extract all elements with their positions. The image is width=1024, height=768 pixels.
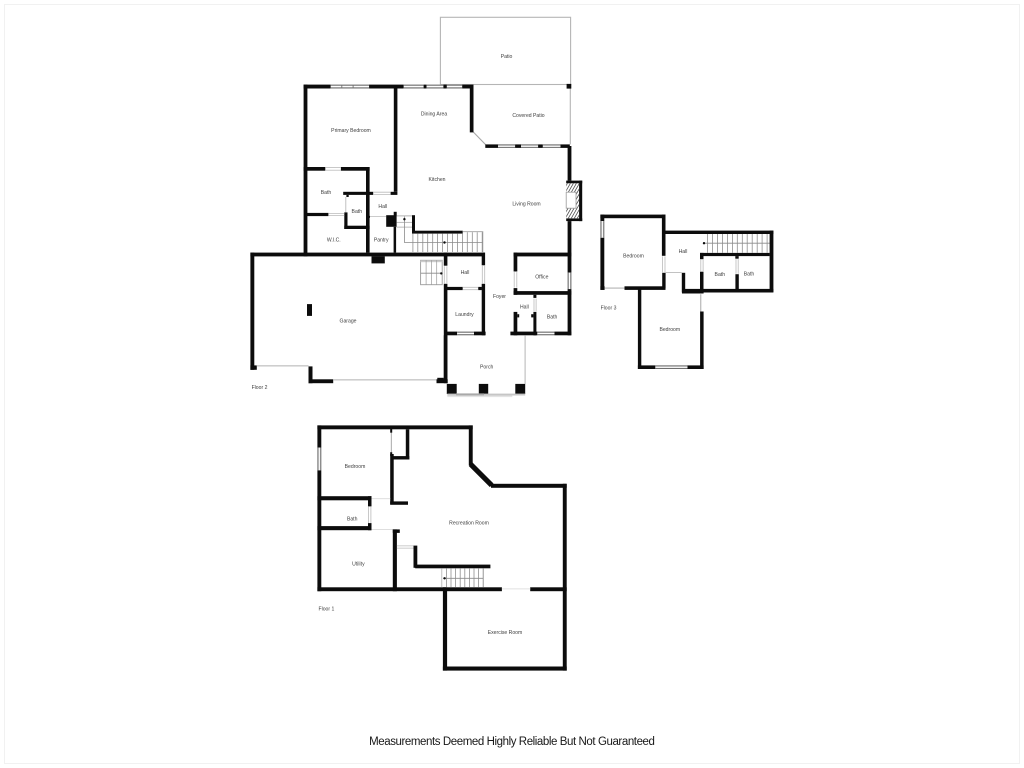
svg-text:Hall: Hall — [679, 249, 688, 255]
svg-text:W.I.C.: W.I.C. — [327, 237, 341, 243]
svg-text:Office: Office — [535, 274, 548, 280]
svg-text:Bath: Bath — [744, 272, 755, 278]
svg-text:Pantry: Pantry — [374, 238, 389, 244]
svg-text:Living Room: Living Room — [512, 202, 540, 208]
svg-text:Kitchen: Kitchen — [429, 177, 446, 183]
svg-text:Primary Bedroom: Primary Bedroom — [331, 128, 371, 134]
svg-text:Bedroom: Bedroom — [345, 464, 366, 470]
svg-text:Bedroom: Bedroom — [623, 253, 644, 259]
svg-text:Bath: Bath — [347, 517, 358, 523]
svg-text:Exercise Room: Exercise Room — [488, 630, 523, 636]
svg-text:Floor 3: Floor 3 — [601, 305, 617, 311]
svg-text:Bedroom: Bedroom — [659, 327, 680, 333]
svg-text:Patio: Patio — [501, 54, 513, 60]
svg-text:Floor 1: Floor 1 — [318, 607, 334, 613]
svg-text:Recreation Room: Recreation Room — [449, 520, 489, 526]
svg-text:Bath: Bath — [321, 190, 332, 196]
svg-text:Laundry: Laundry — [455, 312, 474, 318]
svg-text:Bath: Bath — [715, 272, 726, 278]
svg-text:Foyer: Foyer — [493, 294, 506, 300]
svg-text:Floor 2: Floor 2 — [252, 385, 268, 391]
svg-text:Covered Patio: Covered Patio — [512, 113, 544, 119]
svg-text:Garage: Garage — [340, 318, 357, 324]
svg-text:Hall: Hall — [461, 270, 470, 276]
svg-text:Utility: Utility — [352, 562, 365, 568]
svg-text:Bath: Bath — [352, 209, 363, 215]
svg-text:Dining Area: Dining Area — [421, 111, 448, 117]
svg-text:Porch: Porch — [480, 365, 493, 371]
svg-text:Hall: Hall — [520, 304, 529, 310]
svg-text:Hall: Hall — [378, 204, 387, 210]
svg-text:Measurements Deemed Highly Rel: Measurements Deemed Highly Reliable But … — [369, 736, 654, 748]
svg-text:Bath: Bath — [547, 314, 558, 320]
